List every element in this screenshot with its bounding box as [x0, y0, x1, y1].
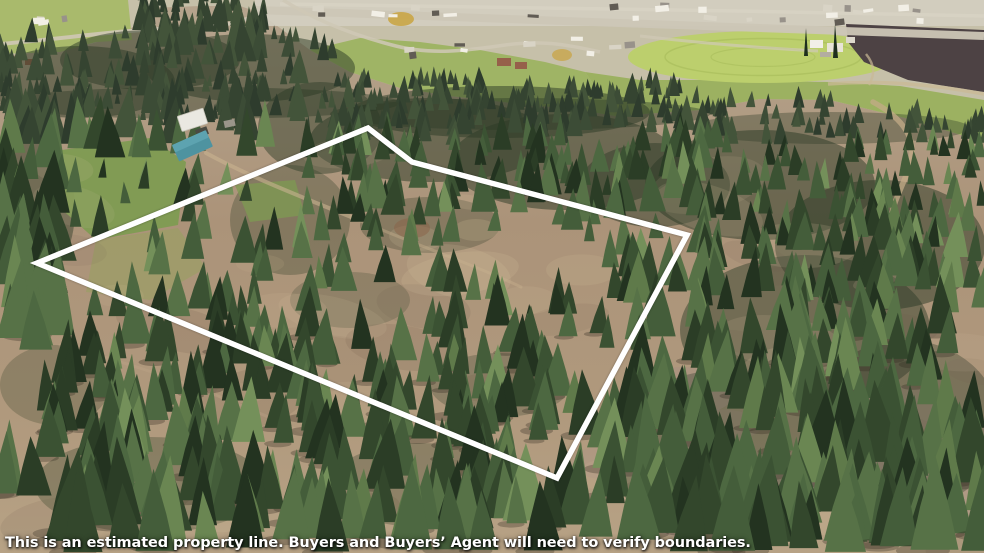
scene-svg	[0, 0, 984, 553]
autumn-trees	[388, 12, 414, 26]
caption-text: This is an estimated property line. Buye…	[5, 535, 751, 551]
autumn-trees	[552, 49, 572, 61]
aerial-photo: This is an estimated property line. Buye…	[0, 0, 984, 553]
